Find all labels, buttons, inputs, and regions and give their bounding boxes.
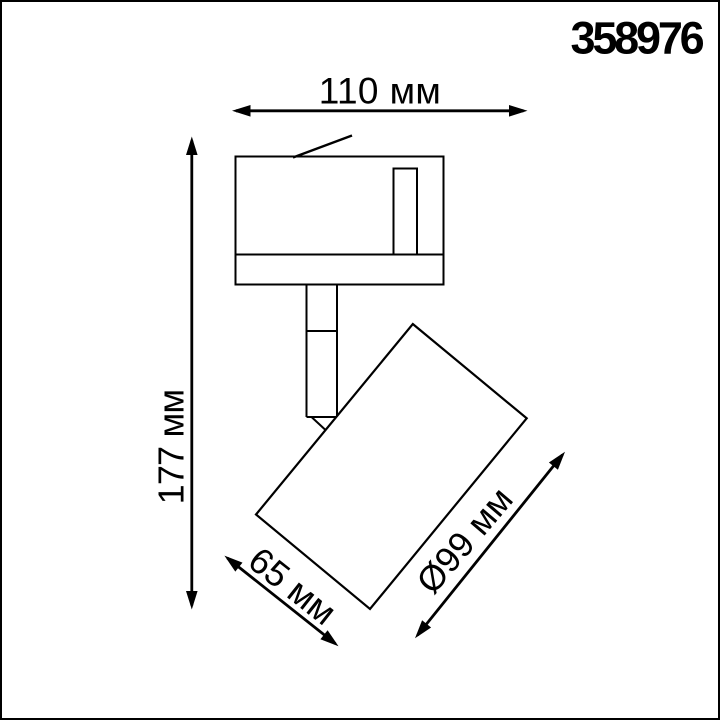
svg-text:177 мм: 177 мм [151, 390, 192, 505]
svg-text:110 мм: 110 мм [319, 70, 442, 111]
svg-text:358976: 358976 [571, 13, 704, 64]
